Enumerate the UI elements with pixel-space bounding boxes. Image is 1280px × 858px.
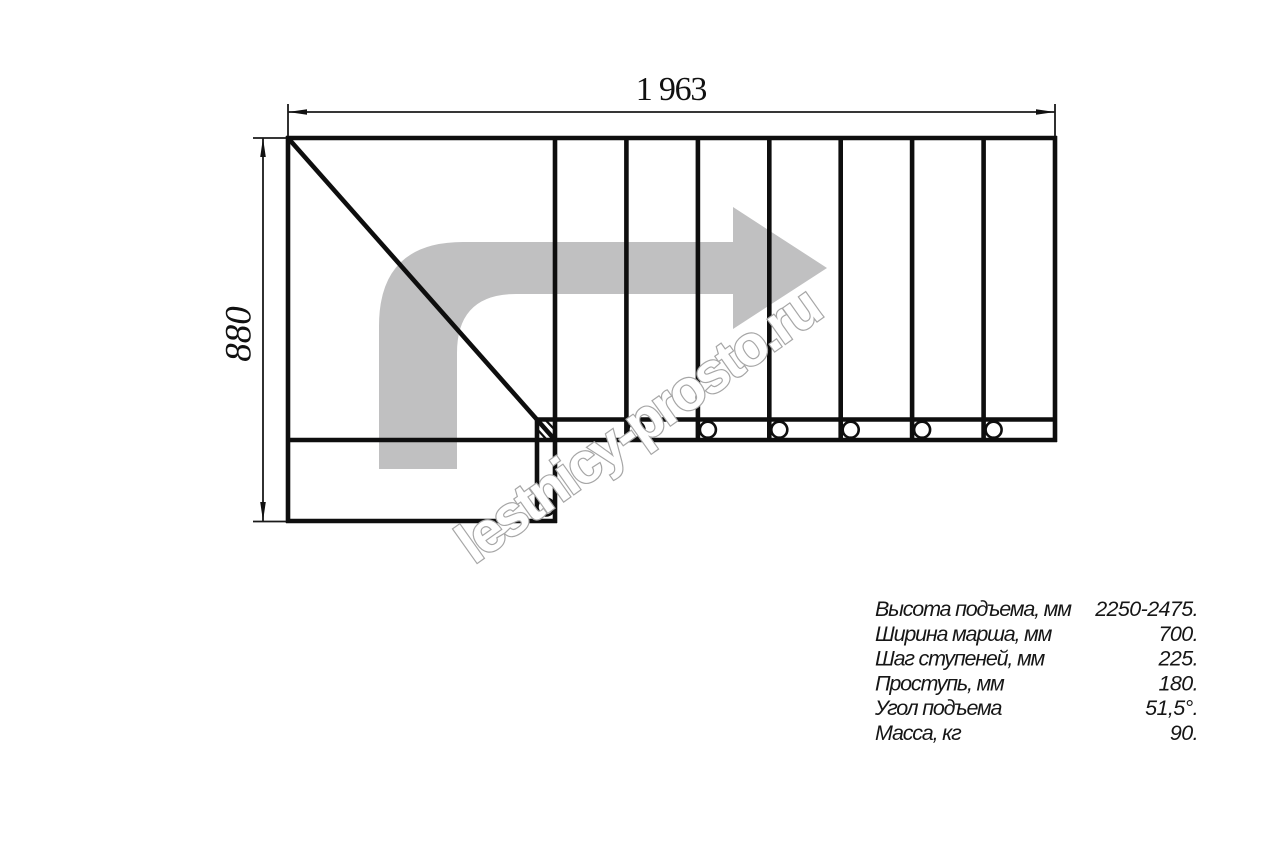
- svg-text:225.: 225.: [1158, 647, 1198, 671]
- svg-text:2250-2475.: 2250-2475.: [1094, 597, 1198, 621]
- svg-text:Высота подъема, мм: Высота подъема, мм: [875, 597, 1072, 621]
- svg-text:880: 880: [219, 306, 260, 362]
- svg-text:1 963: 1 963: [636, 71, 707, 108]
- svg-text:90.: 90.: [1170, 721, 1198, 745]
- svg-text:700.: 700.: [1159, 622, 1198, 646]
- svg-text:Угол подъема: Угол подъема: [874, 696, 1002, 720]
- svg-text:Ширина марша, мм: Ширина марша, мм: [875, 622, 1053, 646]
- svg-text:Проступь, мм: Проступь, мм: [875, 671, 1005, 695]
- svg-text:Шаг ступеней, мм: Шаг ступеней, мм: [875, 647, 1045, 671]
- svg-text:Масса, кг: Масса, кг: [875, 721, 962, 745]
- svg-text:180.: 180.: [1159, 671, 1198, 695]
- svg-text:51,5°.: 51,5°.: [1145, 696, 1198, 720]
